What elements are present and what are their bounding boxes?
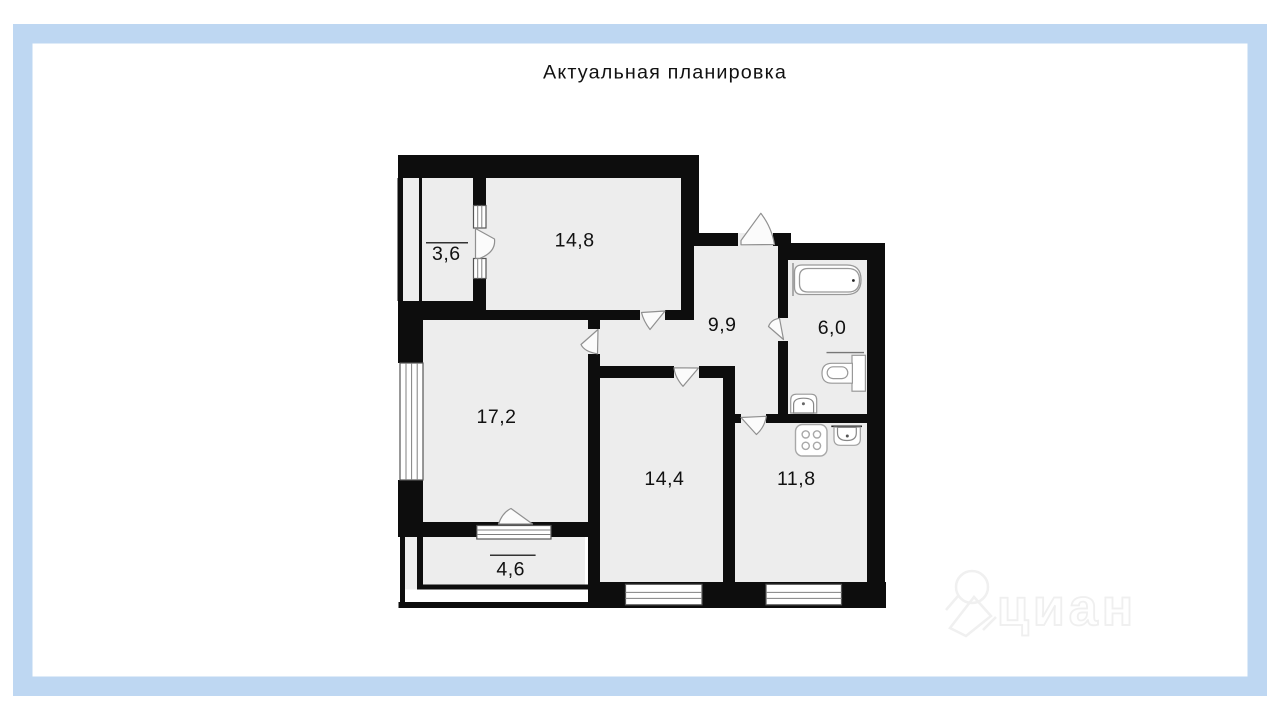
svg-text:4,6: 4,6 <box>496 559 525 581</box>
svg-text:циан: циан <box>997 579 1137 637</box>
svg-text:14,8: 14,8 <box>555 230 595 252</box>
svg-text:3,6: 3,6 <box>432 243 461 265</box>
svg-text:17,2: 17,2 <box>477 406 517 428</box>
svg-text:Актуальная планировка: Актуальная планировка <box>543 62 787 84</box>
svg-text:9,9: 9,9 <box>708 314 737 336</box>
svg-text:11,8: 11,8 <box>777 468 816 490</box>
svg-text:6,0: 6,0 <box>818 317 847 339</box>
svg-text:14,4: 14,4 <box>644 468 684 490</box>
